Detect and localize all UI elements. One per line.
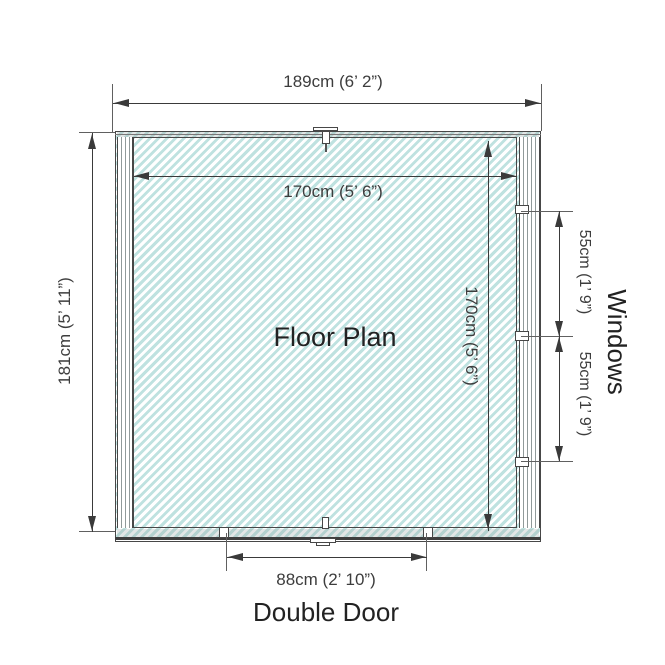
arrowhead-up — [484, 142, 492, 157]
arrowhead-right — [411, 553, 426, 561]
floor-plan-title: Floor Plan — [235, 322, 435, 353]
window-joint-top — [515, 205, 529, 214]
door-width-label: 88cm (2’ 10”) — [226, 570, 426, 590]
window-extension-top — [521, 211, 573, 212]
window-extension-bottom — [521, 461, 573, 462]
interior-height-label: 170cm (5’ 6”) — [461, 236, 481, 436]
arrowhead-right — [525, 99, 540, 107]
bottom-wall-band — [117, 529, 539, 537]
door-extension-right — [426, 533, 427, 571]
arrowhead-left — [114, 99, 129, 107]
window-upper-dimension-line — [559, 211, 560, 336]
arrowhead-right — [501, 172, 516, 180]
door-jamb-left — [219, 527, 229, 538]
window-extension-middle — [521, 336, 573, 337]
window-lower-dimension-line — [559, 336, 560, 461]
overall-width-label: 189cm (6’ 2”) — [233, 72, 433, 92]
width-extension-right — [541, 84, 542, 131]
arrowhead-down — [484, 514, 492, 529]
arrowhead-left — [228, 553, 243, 561]
door-bolt — [322, 517, 329, 529]
overall-height-label: 181cm (5’ 11”) — [55, 231, 75, 431]
floor-plan-diagram: 189cm (6’ 2”) 181cm (5’ 11”) 170cm (5’ 6… — [0, 0, 665, 665]
arrowhead-up — [555, 212, 563, 227]
door-handle — [316, 542, 330, 546]
door-extension-left — [226, 533, 227, 571]
window-joint-bottom — [515, 457, 529, 467]
height-extension-bottom — [79, 531, 115, 532]
arrowhead-down — [555, 446, 563, 461]
arrowhead-down — [88, 516, 96, 531]
interior-width-line — [134, 176, 517, 177]
double-door-label: Double Door — [211, 597, 441, 628]
window-lower-label: 55cm (1’ 9”) — [574, 294, 594, 494]
arrowhead-down — [555, 321, 563, 336]
width-extension-left — [112, 84, 113, 133]
door-jamb-right — [423, 527, 433, 538]
interior-width-label: 170cm (5’ 6”) — [233, 182, 433, 202]
arrowhead-left — [134, 172, 149, 180]
top-bolt-stem — [325, 144, 327, 152]
windows-label: Windows — [603, 242, 631, 442]
top-bolt-pin — [322, 131, 330, 144]
arrowhead-up — [555, 337, 563, 352]
arrowhead-up — [88, 134, 96, 149]
height-dimension-line — [92, 133, 93, 532]
door-dimension-line — [227, 557, 427, 558]
height-extension-top — [79, 132, 115, 133]
left-wall — [117, 137, 133, 528]
interior-height-line — [488, 141, 489, 531]
width-dimension-line — [113, 103, 541, 104]
